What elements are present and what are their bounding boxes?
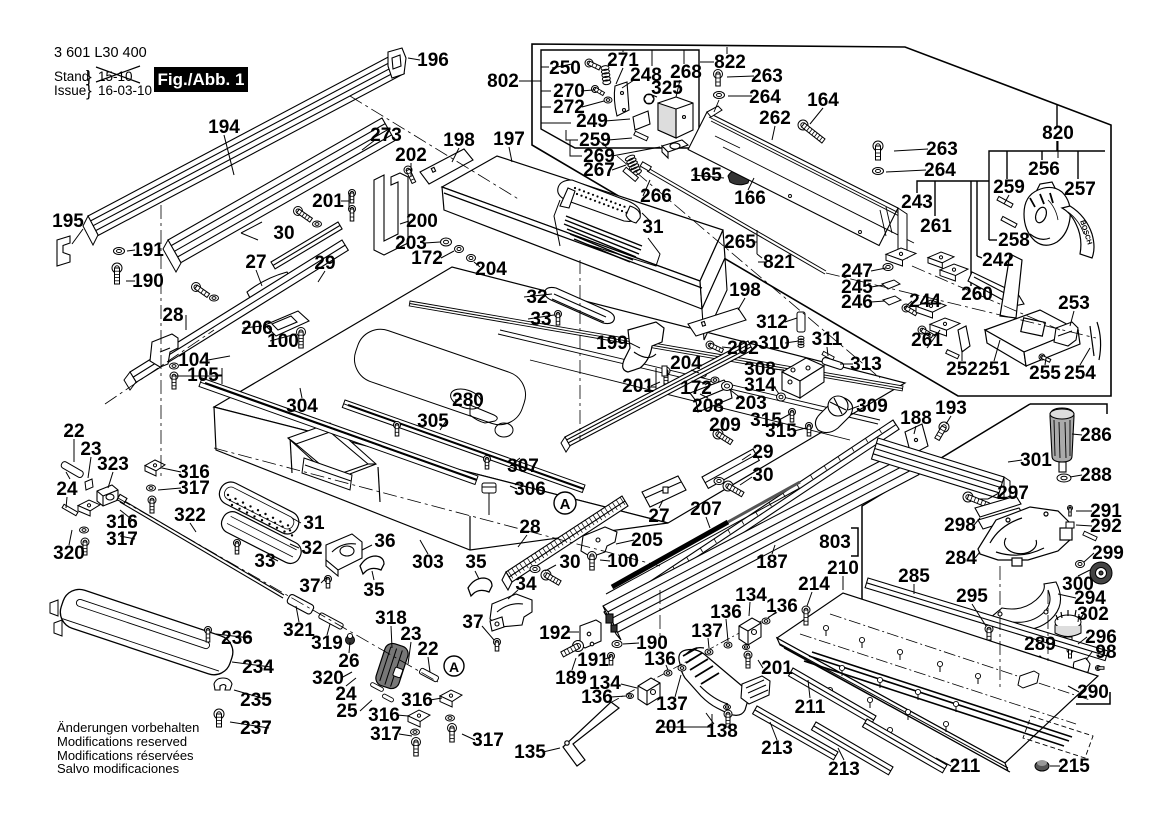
- svg-text:312: 312: [756, 312, 788, 333]
- svg-text:307: 307: [507, 456, 539, 477]
- svg-text:192: 192: [539, 623, 571, 644]
- svg-text:197: 197: [493, 129, 525, 150]
- svg-text:256: 256: [1028, 159, 1060, 180]
- svg-text:137: 137: [656, 694, 688, 715]
- svg-text:254: 254: [1064, 363, 1096, 384]
- svg-text:310: 310: [758, 333, 790, 354]
- svg-text:204: 204: [475, 259, 507, 280]
- svg-text:165: 165: [690, 165, 722, 186]
- svg-text:802: 802: [487, 71, 519, 92]
- svg-text:100: 100: [607, 551, 639, 572]
- svg-text:198: 198: [729, 280, 761, 301]
- svg-text:251: 251: [978, 359, 1010, 380]
- svg-text:210: 210: [827, 558, 859, 579]
- svg-text:315: 315: [765, 421, 797, 442]
- svg-text:286: 286: [1080, 425, 1112, 446]
- svg-text:242: 242: [982, 250, 1014, 271]
- svg-text:Issue: Issue: [54, 83, 86, 98]
- svg-text:207: 207: [690, 499, 722, 520]
- svg-text:202: 202: [395, 145, 427, 166]
- svg-text:305: 305: [417, 411, 449, 432]
- svg-text:37: 37: [462, 612, 483, 633]
- svg-text:267: 267: [583, 160, 615, 181]
- svg-text:Stand: Stand: [54, 69, 89, 84]
- svg-text:A: A: [449, 659, 459, 675]
- svg-text:273: 273: [370, 125, 402, 146]
- svg-text:35: 35: [465, 552, 487, 573]
- svg-text:264: 264: [924, 160, 956, 181]
- svg-text:323: 323: [97, 454, 129, 475]
- svg-text:311: 311: [812, 329, 843, 350]
- svg-text:213: 213: [828, 759, 860, 780]
- svg-text:198: 198: [443, 130, 475, 151]
- svg-text:Änderungen vorbehalten: Änderungen vorbehalten: [57, 720, 199, 735]
- svg-text:249: 249: [576, 111, 608, 132]
- svg-text:202: 202: [727, 338, 759, 359]
- svg-text:261: 261: [911, 330, 943, 351]
- svg-text:237: 237: [240, 718, 272, 739]
- svg-text:22: 22: [417, 639, 438, 660]
- svg-text:317: 317: [370, 724, 402, 745]
- svg-text:263: 263: [926, 139, 958, 160]
- svg-text:28: 28: [162, 305, 183, 326]
- svg-text:15-10: 15-10: [98, 69, 133, 84]
- svg-text:105: 105: [187, 365, 219, 386]
- svg-text:259: 259: [993, 177, 1025, 198]
- svg-text:36: 36: [374, 531, 395, 552]
- svg-text:136: 136: [766, 596, 798, 617]
- svg-text:214: 214: [798, 574, 830, 595]
- svg-text:200: 200: [406, 211, 438, 232]
- svg-text:822: 822: [714, 52, 746, 73]
- svg-text:135: 135: [514, 742, 546, 763]
- svg-text:27: 27: [648, 506, 669, 527]
- svg-text:317: 317: [106, 529, 138, 550]
- svg-text:292: 292: [1090, 516, 1122, 537]
- svg-text:204: 204: [670, 353, 702, 374]
- svg-text:16-03-10: 16-03-10: [98, 83, 152, 98]
- svg-text:255: 255: [1029, 363, 1061, 384]
- svg-text:252: 252: [946, 359, 978, 380]
- svg-text:A: A: [560, 496, 571, 513]
- svg-text:262: 262: [759, 108, 791, 129]
- svg-text:201: 201: [622, 376, 654, 397]
- svg-text:Modifications reserved: Modifications reserved: [57, 734, 187, 749]
- svg-text:299: 299: [1092, 543, 1124, 564]
- svg-text:246: 246: [841, 292, 873, 313]
- svg-text:29: 29: [314, 253, 335, 274]
- svg-text:199: 199: [596, 333, 628, 354]
- svg-text:35: 35: [363, 580, 385, 601]
- svg-text:193: 193: [935, 398, 967, 419]
- svg-text:313: 313: [850, 354, 882, 375]
- svg-text:100: 100: [267, 331, 299, 352]
- svg-text:37: 37: [299, 576, 320, 597]
- svg-text:30: 30: [752, 465, 773, 486]
- svg-text:98: 98: [1095, 642, 1116, 663]
- svg-text:265: 265: [724, 232, 756, 253]
- svg-text:187: 187: [756, 552, 788, 573]
- svg-text:820: 820: [1042, 123, 1074, 144]
- svg-text:258: 258: [998, 230, 1030, 251]
- svg-text:3 601 L30 400: 3 601 L30 400: [54, 45, 147, 61]
- svg-text:309: 309: [856, 396, 888, 417]
- svg-text:137: 137: [691, 621, 723, 642]
- svg-text:138: 138: [706, 721, 738, 742]
- svg-text:Fig./Abb. 1: Fig./Abb. 1: [158, 70, 245, 89]
- svg-text:31: 31: [642, 217, 664, 238]
- svg-text:Salvo modificaciones: Salvo modificaciones: [57, 761, 180, 776]
- svg-text:280: 280: [452, 390, 484, 411]
- svg-text:208: 208: [692, 396, 724, 417]
- svg-text:30: 30: [559, 552, 580, 573]
- svg-text:253: 253: [1058, 293, 1090, 314]
- svg-text:243: 243: [901, 192, 933, 213]
- svg-text:288: 288: [1080, 465, 1112, 486]
- svg-text:24: 24: [56, 479, 78, 500]
- svg-text:304: 304: [286, 396, 318, 417]
- svg-text:234: 234: [242, 657, 274, 678]
- svg-text:821: 821: [763, 252, 795, 273]
- svg-text:195: 195: [52, 211, 84, 232]
- svg-text:215: 215: [1058, 756, 1090, 777]
- svg-text:320: 320: [53, 543, 85, 564]
- svg-text:164: 164: [807, 90, 839, 111]
- svg-text:803: 803: [819, 532, 851, 553]
- svg-text:201: 201: [761, 658, 793, 679]
- svg-text:285: 285: [898, 566, 930, 587]
- svg-text:191: 191: [132, 240, 164, 261]
- svg-text:211: 211: [950, 756, 981, 777]
- svg-text:303: 303: [412, 552, 444, 573]
- svg-text:190: 190: [636, 633, 668, 654]
- svg-text:166: 166: [734, 188, 766, 209]
- svg-text:263: 263: [751, 66, 783, 87]
- svg-text:189: 189: [555, 668, 587, 689]
- svg-text:290: 290: [1077, 682, 1109, 703]
- svg-text:172: 172: [411, 248, 443, 269]
- svg-text:244: 244: [909, 291, 941, 312]
- svg-text:264: 264: [749, 87, 781, 108]
- svg-text:317: 317: [178, 478, 210, 499]
- svg-text:250: 250: [549, 58, 581, 79]
- svg-text:25: 25: [336, 701, 358, 722]
- svg-text:136: 136: [581, 687, 613, 708]
- svg-text:196: 196: [417, 50, 449, 71]
- svg-text:317: 317: [472, 730, 504, 751]
- svg-text:213: 213: [761, 738, 793, 759]
- svg-text:27: 27: [245, 252, 266, 273]
- svg-text:31: 31: [303, 513, 325, 534]
- svg-text:29: 29: [752, 442, 773, 463]
- svg-text:260: 260: [961, 284, 993, 305]
- svg-text:32: 32: [526, 287, 547, 308]
- svg-text:266: 266: [640, 186, 672, 207]
- svg-text:301: 301: [1020, 450, 1052, 471]
- svg-text:}: }: [86, 81, 92, 100]
- svg-text:190: 190: [132, 271, 164, 292]
- svg-text:33: 33: [530, 309, 551, 330]
- svg-text:295: 295: [956, 586, 988, 607]
- svg-text:261: 261: [920, 216, 952, 237]
- svg-text:322: 322: [174, 505, 206, 526]
- svg-text:257: 257: [1064, 179, 1096, 200]
- svg-text:33: 33: [254, 551, 275, 572]
- svg-text:191: 191: [577, 650, 609, 671]
- svg-text:306: 306: [514, 479, 546, 500]
- svg-text:209: 209: [709, 415, 741, 436]
- svg-text:201: 201: [312, 191, 344, 212]
- svg-text:235: 235: [240, 690, 272, 711]
- svg-text:316: 316: [368, 705, 400, 726]
- svg-text:236: 236: [221, 628, 253, 649]
- svg-text:314: 314: [744, 375, 776, 396]
- svg-text:298: 298: [944, 515, 976, 536]
- svg-text:289: 289: [1024, 634, 1056, 655]
- svg-text:136: 136: [710, 602, 742, 623]
- svg-text:302: 302: [1077, 604, 1109, 625]
- svg-text:284: 284: [945, 548, 977, 569]
- svg-text:297: 297: [997, 483, 1029, 504]
- svg-text:30: 30: [273, 223, 294, 244]
- svg-text:32: 32: [301, 538, 322, 559]
- svg-text:28: 28: [519, 517, 540, 538]
- svg-text:325: 325: [651, 78, 683, 99]
- svg-text:201: 201: [655, 717, 687, 738]
- svg-text:194: 194: [208, 117, 240, 138]
- svg-text:316: 316: [401, 690, 433, 711]
- svg-text:34: 34: [515, 574, 537, 595]
- svg-text:211: 211: [795, 697, 826, 718]
- svg-text:188: 188: [900, 408, 932, 429]
- svg-text:205: 205: [631, 530, 663, 551]
